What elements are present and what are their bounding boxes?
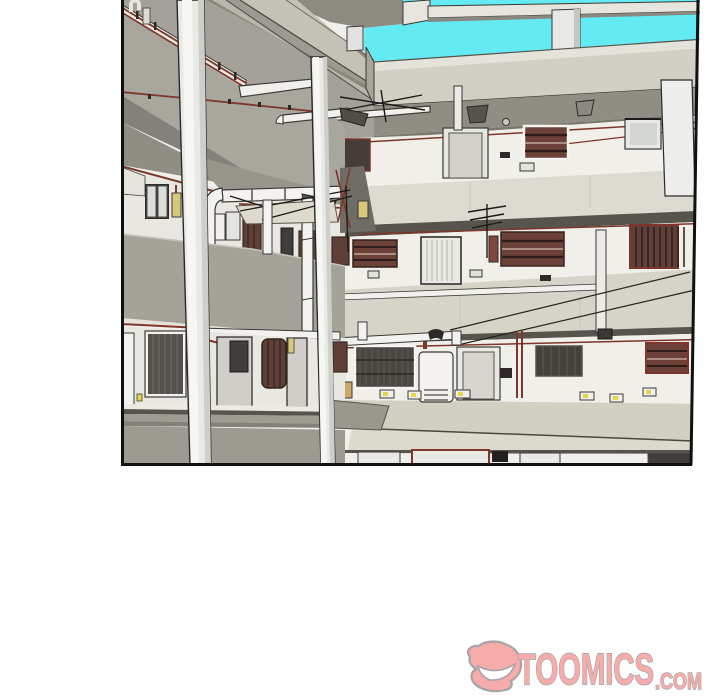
- svg-text:.COM: .COM: [655, 668, 702, 694]
- svg-text:TOOMICS: TOOMICS: [518, 645, 654, 694]
